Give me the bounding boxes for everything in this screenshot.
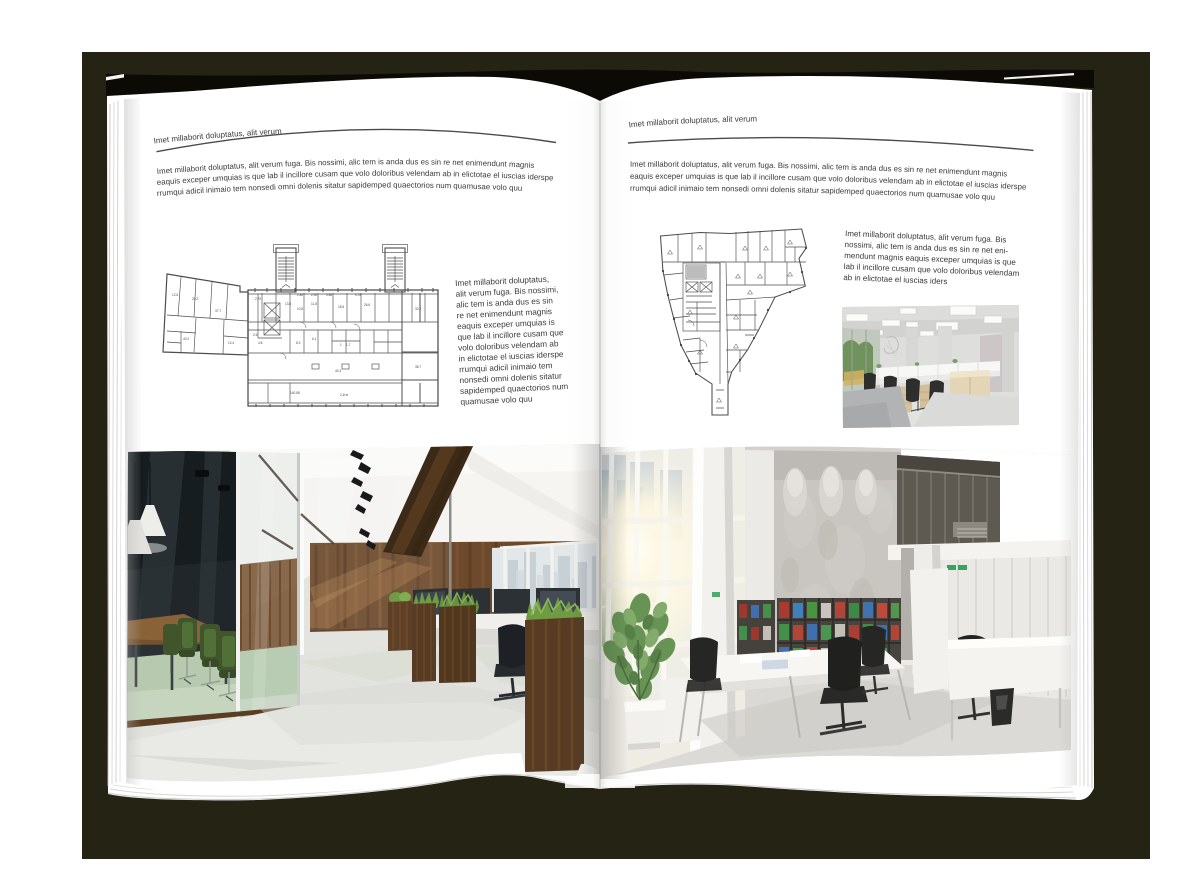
svg-text:4.8: 4.8 bbox=[258, 341, 263, 345]
svg-text:40.2: 40.2 bbox=[183, 337, 189, 341]
svg-text:10.8: 10.8 bbox=[297, 307, 303, 311]
svg-text:37.7: 37.7 bbox=[215, 309, 221, 313]
svg-text:11.7: 11.7 bbox=[340, 343, 351, 347]
svg-text:5.78: 5.78 bbox=[355, 293, 361, 297]
svg-text:18.5: 18.5 bbox=[338, 305, 344, 309]
svg-text:12.6: 12.6 bbox=[172, 293, 178, 297]
svg-text:Imet millaborit doluptatus,: Imet millaborit doluptatus, alit verum f… bbox=[455, 274, 571, 407]
svg-text:2-й эт: 2-й эт bbox=[340, 393, 349, 397]
svg-text:12.4: 12.4 bbox=[228, 341, 234, 345]
svg-text:13.8: 13.8 bbox=[285, 302, 291, 306]
svg-text:8.3: 8.3 bbox=[296, 341, 301, 345]
svg-text:20.2: 20.2 bbox=[192, 297, 198, 301]
svg-text:40.3: 40.3 bbox=[335, 369, 341, 373]
svg-text:32.2: 32.2 bbox=[415, 307, 421, 311]
svg-text:2.70: 2.70 bbox=[255, 297, 261, 301]
svg-text:26.6: 26.6 bbox=[364, 303, 370, 307]
svg-text:36.7: 36.7 bbox=[415, 365, 421, 369]
svg-text:3.86: 3.86 bbox=[326, 293, 332, 297]
svg-text:2.30: 2.30 bbox=[311, 293, 317, 297]
svg-text:11.8: 11.8 bbox=[311, 302, 317, 306]
svg-text:6.1: 6.1 bbox=[312, 337, 317, 341]
svg-text:2.80: 2.80 bbox=[297, 293, 303, 297]
svg-text:140.88: 140.88 bbox=[290, 391, 300, 395]
svg-text:2.6: 2.6 bbox=[253, 333, 258, 337]
